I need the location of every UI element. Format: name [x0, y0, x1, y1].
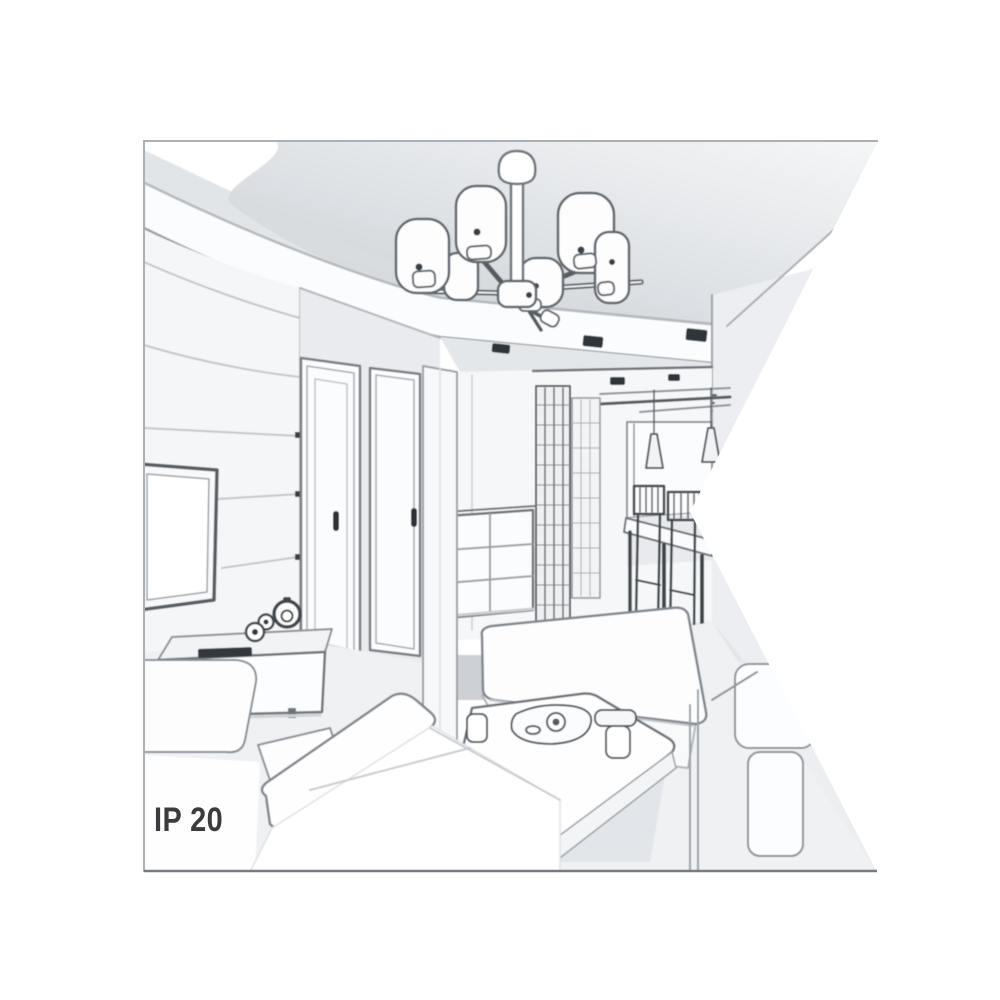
plate	[595, 710, 636, 726]
door-2	[370, 368, 420, 656]
ceiling-canopy	[499, 151, 536, 184]
cup	[467, 714, 487, 742]
drawer-handle	[198, 647, 252, 658]
door-wall	[300, 288, 440, 672]
door-handle	[411, 508, 417, 527]
product-image-canvas: IP 20	[0, 0, 1000, 1000]
wardrobe-grid-doors	[536, 386, 600, 624]
door-handle	[333, 511, 339, 531]
room-sketch	[0, 0, 1000, 1000]
ip-rating-label: IP 20	[154, 803, 223, 837]
chandelier-stem	[511, 180, 523, 288]
chest-of-drawers	[445, 506, 535, 618]
cup	[606, 726, 630, 758]
tv	[140, 464, 217, 610]
door-1	[301, 358, 360, 672]
